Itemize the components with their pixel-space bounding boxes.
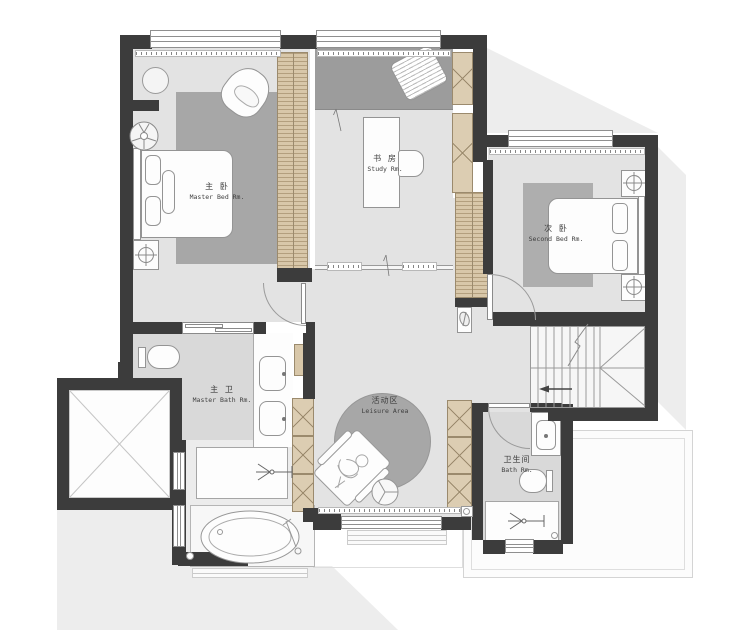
- sliding-door-panel: [215, 328, 252, 332]
- window: [508, 130, 613, 147]
- wall: [483, 540, 505, 554]
- hall-cabinet-cell-2: [447, 437, 472, 474]
- curtain-track: [489, 148, 645, 155]
- room-label-second-bed: 次 卧 Second Bed Rm.: [529, 223, 584, 243]
- window: [150, 30, 281, 48]
- wall: [277, 268, 312, 282]
- wall: [645, 135, 658, 326]
- window: [173, 505, 185, 547]
- elevator-wall: [57, 378, 69, 510]
- vase-stand: [457, 307, 472, 333]
- floor-drain: [186, 552, 194, 560]
- room-label-study: 书 房 Study Rm.: [367, 153, 402, 173]
- bath-cabinet-cell-3: [292, 474, 314, 512]
- elevator-wall: [57, 498, 182, 510]
- wall: [561, 404, 573, 544]
- floor-plan: 主 卧 Master Bed Rm. 书 房 Study Rm. 次 卧 Sec…: [0, 0, 735, 630]
- pillow: [145, 155, 161, 185]
- room-label-en: Master Bath Rm.: [193, 396, 252, 404]
- elevator-shaft: [69, 390, 170, 498]
- wall: [133, 100, 159, 111]
- floor-drain: [551, 532, 558, 539]
- wall: [313, 517, 341, 530]
- toilet-bowl: [147, 345, 180, 369]
- room-label-master-bath: 主 卫 Master Bath Rm.: [193, 384, 252, 404]
- master-wardrobe: [277, 52, 308, 280]
- wall: [530, 403, 562, 412]
- window: [316, 30, 441, 48]
- window: [505, 539, 534, 553]
- wall: [645, 326, 658, 420]
- room-label-en: Bath Rm.: [501, 466, 532, 474]
- master-bed-headboard: [133, 148, 141, 240]
- wall: [303, 333, 315, 399]
- wall: [472, 404, 483, 540]
- sliding-panel: [327, 262, 362, 271]
- faucet-dot: [544, 434, 548, 438]
- wall: [533, 540, 563, 554]
- wall: [455, 298, 488, 307]
- bathtub-steps: [192, 568, 308, 578]
- curtain-track: [318, 507, 461, 514]
- study-cabinet-upper: [452, 52, 473, 105]
- second-nightstand-top: [621, 170, 647, 197]
- sliding-panel: [402, 262, 437, 271]
- wall: [483, 160, 493, 274]
- second-bed-headboard: [638, 196, 645, 276]
- hall-cabinet-cell-1: [447, 400, 472, 437]
- study-cabinet-lower: [452, 113, 473, 193]
- stair-landing-floor: [483, 326, 530, 412]
- curtain-track: [135, 50, 281, 57]
- window: [341, 516, 442, 529]
- room-label-zh: 次 卧: [529, 223, 584, 234]
- room-label-master-bed: 主 卧 Master Bed Rm.: [190, 181, 245, 201]
- room-label-zh: 书 房: [367, 153, 402, 164]
- room-label-leisure: 活动区 Leisure Area: [362, 395, 409, 415]
- toilet-tank: [138, 347, 146, 368]
- pillow: [612, 203, 628, 234]
- faucet-dot: [282, 372, 286, 376]
- faucet-dot: [282, 417, 286, 421]
- bolster-pillow: [162, 170, 175, 214]
- bedside-round-table: [142, 67, 169, 94]
- bath-shower: [485, 501, 559, 541]
- master-shower: [196, 447, 288, 499]
- wall: [254, 322, 266, 334]
- elevator-wall: [170, 378, 182, 510]
- leisure-steps: [347, 530, 447, 545]
- wall: [120, 322, 182, 334]
- wall: [118, 362, 131, 380]
- room-label-zh: 卫生间: [501, 454, 532, 465]
- room-label-zh: 主 卫: [193, 384, 252, 395]
- wall: [280, 35, 317, 49]
- second-nightstand-bottom: [621, 274, 647, 301]
- master-nightstand: [133, 240, 159, 270]
- room-label-zh: 主 卧: [190, 181, 245, 192]
- room-label-bath: 卫生间 Bath Rm.: [501, 454, 532, 474]
- room-label-zh: 活动区: [362, 395, 409, 406]
- room-label-en: Second Bed Rm.: [529, 235, 584, 243]
- curtain-track: [317, 50, 451, 57]
- pillow: [612, 240, 628, 271]
- room-label-en: Leisure Area: [362, 407, 409, 415]
- bath-cabinet-cell-2: [292, 436, 314, 474]
- hall-cabinet-cell-3: [447, 474, 472, 510]
- bath-cabinet-cell-1: [292, 398, 314, 436]
- wall: [483, 135, 510, 147]
- room-label-en: Master Bed Rm.: [190, 193, 245, 201]
- pillow: [145, 196, 161, 226]
- wall-fixture-circle: [463, 508, 470, 515]
- wall: [120, 35, 133, 390]
- room-label-en: Study Rm.: [367, 165, 402, 173]
- wall: [441, 517, 471, 530]
- toilet-tank: [546, 470, 553, 492]
- stairs-floor: [530, 326, 645, 408]
- window: [173, 452, 185, 490]
